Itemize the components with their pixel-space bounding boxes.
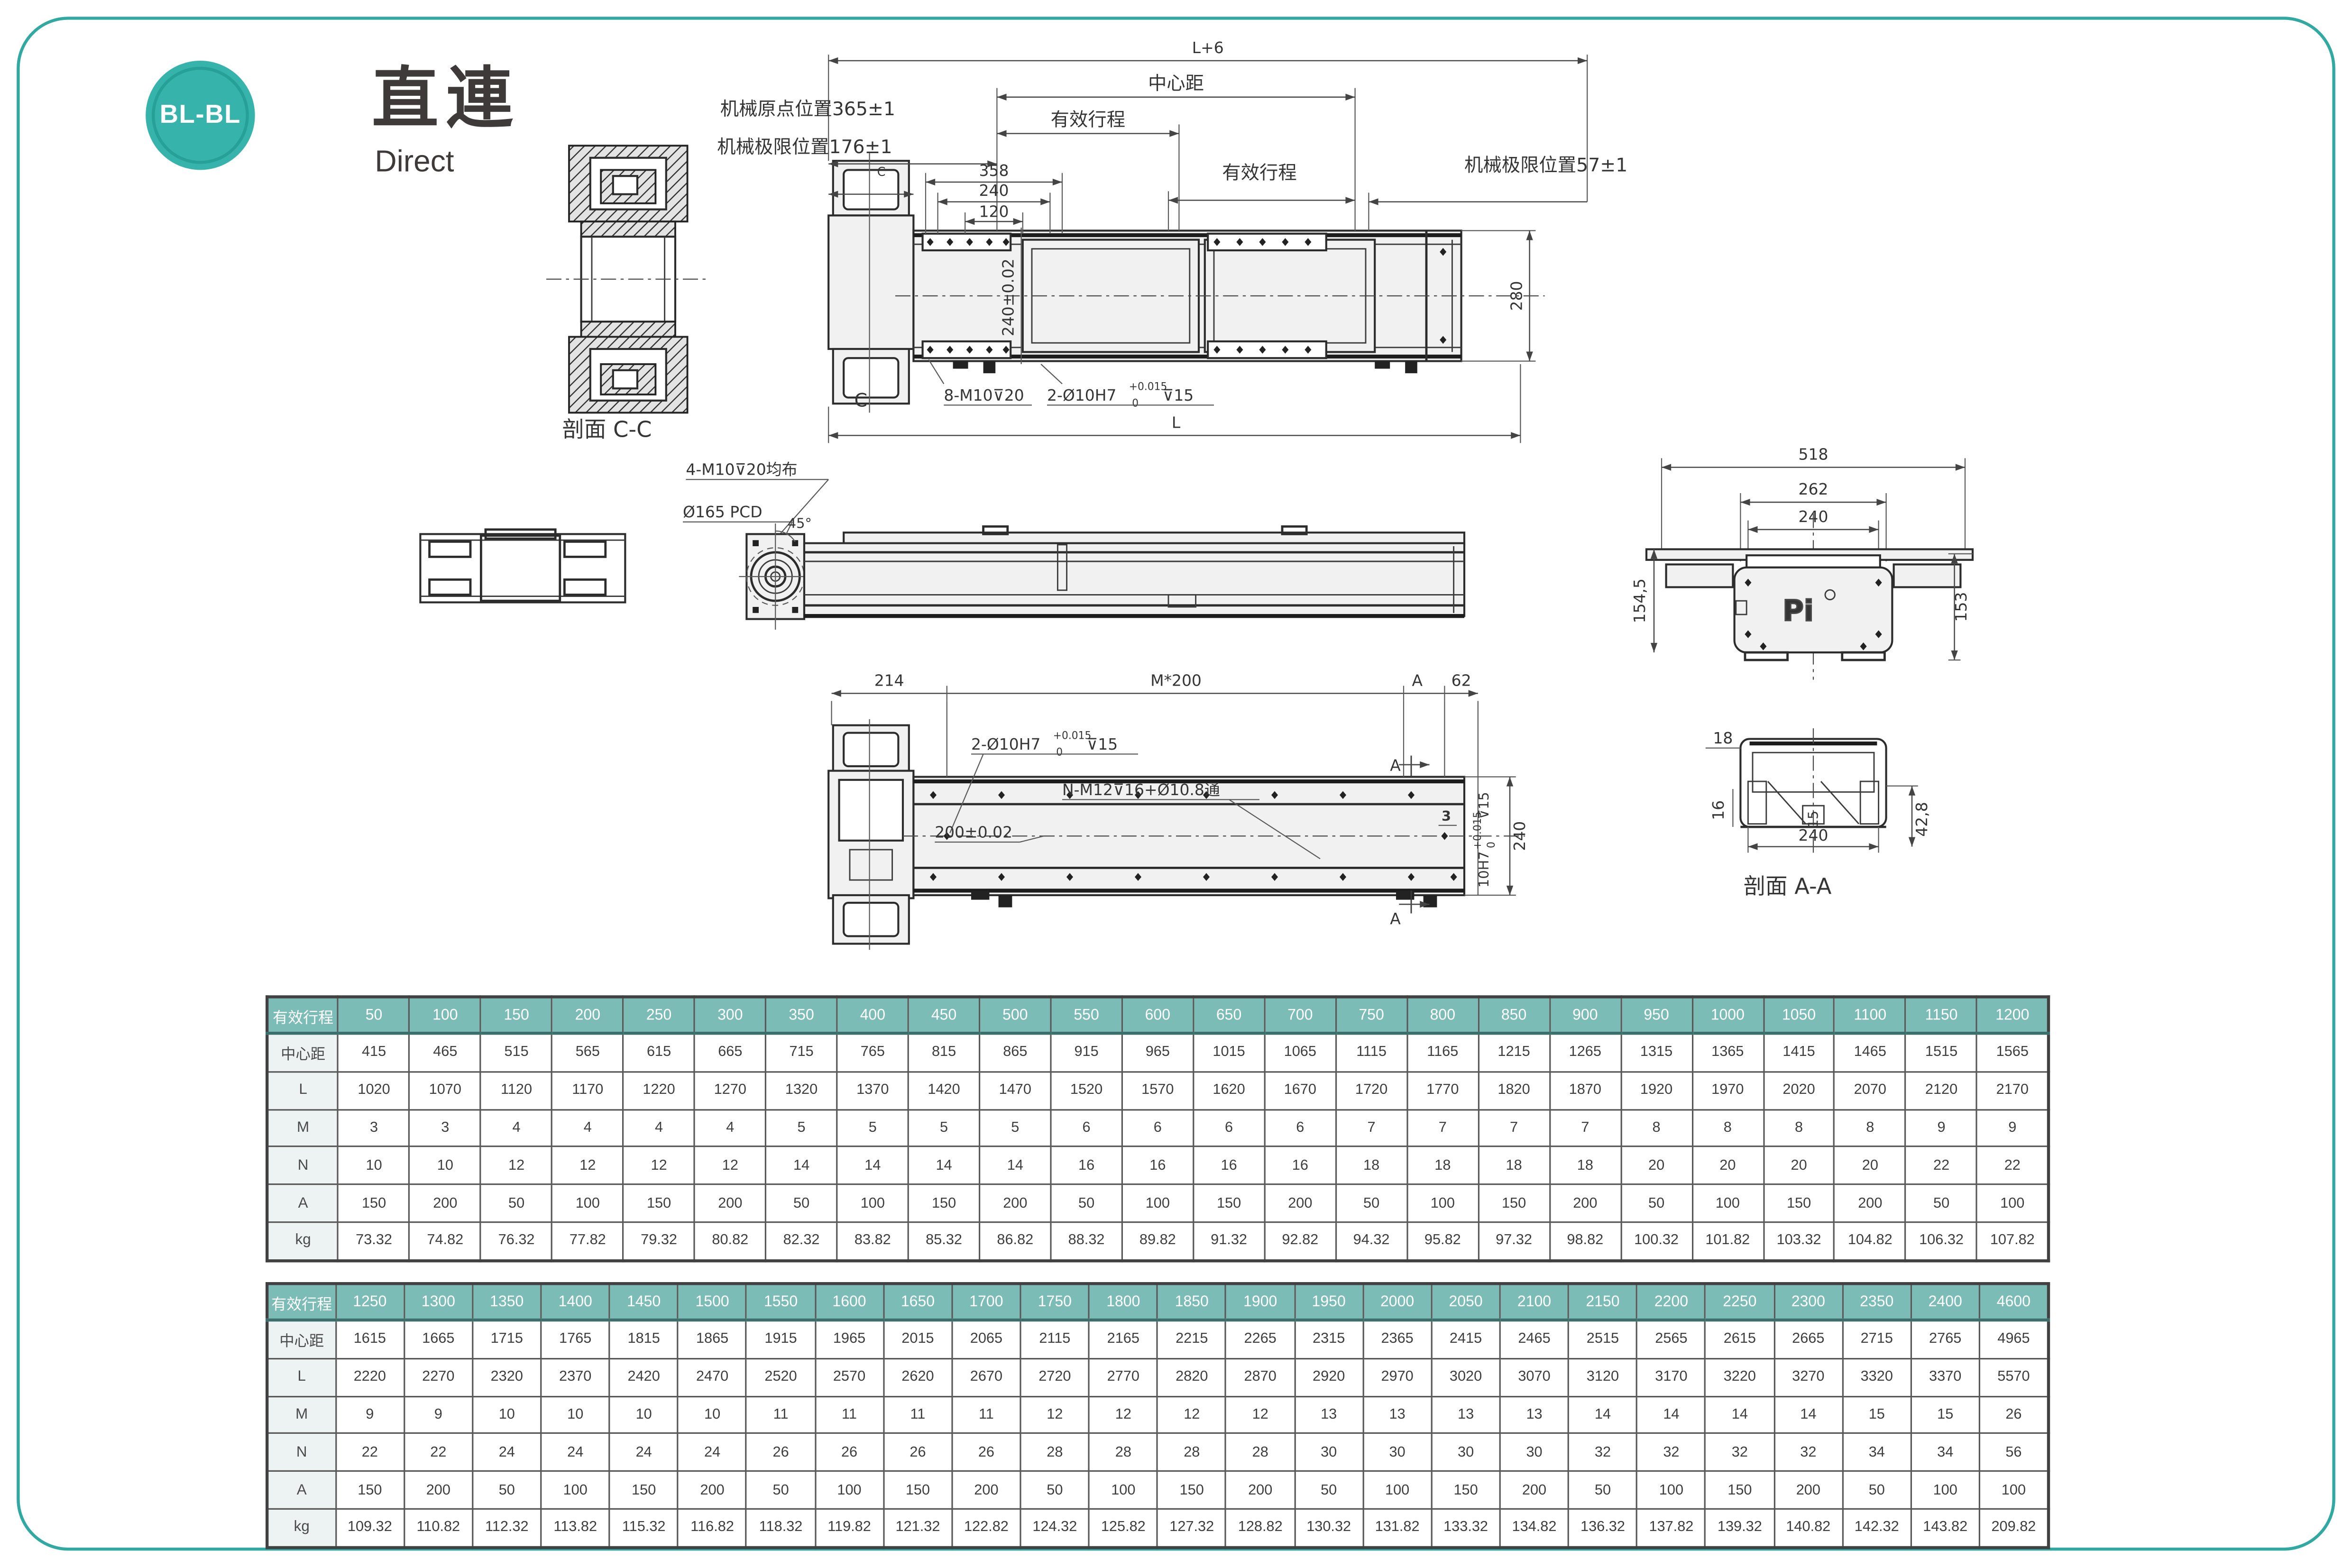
table-cell: 11 bbox=[952, 1396, 1020, 1433]
table-cell: 112.32 bbox=[473, 1509, 541, 1547]
table-cell: 1065 bbox=[1265, 1033, 1336, 1072]
table-cell: 8 bbox=[1692, 1110, 1763, 1147]
table-cell: 12 bbox=[1089, 1396, 1158, 1433]
table-cell: 200 bbox=[678, 1471, 746, 1509]
section-a-top: A bbox=[1390, 756, 1401, 775]
table-cell: 200 bbox=[952, 1471, 1020, 1509]
table-cell: 18 bbox=[1336, 1147, 1407, 1184]
table-cell: 3220 bbox=[1706, 1358, 1774, 1396]
table-cell: 18 bbox=[1478, 1147, 1549, 1184]
spec-table: 有效行程125013001350140014501500155016001650… bbox=[266, 1282, 2050, 1549]
table-cell: 24 bbox=[609, 1434, 678, 1471]
table-cell: 2265 bbox=[1226, 1320, 1295, 1358]
table-cell: 18 bbox=[1550, 1147, 1621, 1184]
table-cell: 95.82 bbox=[1407, 1222, 1478, 1261]
table-cell: 12 bbox=[623, 1147, 694, 1184]
side-hole-depth: ⊽15 bbox=[1476, 792, 1492, 819]
table-row: N101012121212141414141616161618181818202… bbox=[267, 1147, 2049, 1184]
table-cell: 2570 bbox=[815, 1358, 883, 1396]
table-cell: 10 bbox=[541, 1396, 609, 1433]
table-cell: 2665 bbox=[1774, 1320, 1842, 1358]
table-cell: 119.82 bbox=[815, 1509, 883, 1547]
table-cell: 16 bbox=[1265, 1147, 1336, 1184]
table-cell: 137.82 bbox=[1637, 1509, 1705, 1547]
table-cell: 116.82 bbox=[678, 1509, 746, 1547]
stroke-header-value: 1350 bbox=[473, 1284, 541, 1320]
table-cell: 1320 bbox=[766, 1072, 837, 1109]
table-cell: 1915 bbox=[746, 1320, 815, 1358]
table-cell: 113.82 bbox=[541, 1509, 609, 1547]
section-mark-c-bottom: C bbox=[854, 390, 867, 412]
table-cell: 965 bbox=[1122, 1033, 1193, 1072]
table-cell: 20 bbox=[1763, 1147, 1834, 1184]
section-cc-label: 剖面 C-C bbox=[562, 417, 652, 442]
tol-sup-bottom: +0.015 bbox=[1053, 730, 1092, 742]
table-cell: 50 bbox=[481, 1184, 552, 1222]
table-cell: 2215 bbox=[1158, 1320, 1226, 1358]
table-cell: 28 bbox=[1089, 1434, 1158, 1471]
dim-18: 18 bbox=[1713, 729, 1733, 747]
table-cell: 150 bbox=[1706, 1471, 1774, 1509]
table-cell: 8 bbox=[1621, 1110, 1692, 1147]
stroke-header-value: 500 bbox=[980, 997, 1051, 1033]
table-cell: 150 bbox=[336, 1471, 404, 1509]
dim-m200: M*200 bbox=[1150, 671, 1202, 689]
table-cell: 2120 bbox=[1906, 1072, 1977, 1109]
table-cell: 26 bbox=[815, 1434, 883, 1471]
table-cell: 2670 bbox=[952, 1358, 1020, 1396]
table-cell: 131.82 bbox=[1363, 1509, 1431, 1547]
table-cell: 2470 bbox=[678, 1358, 746, 1396]
a-mark-dim: A bbox=[1412, 671, 1423, 689]
table-cell: 125.82 bbox=[1089, 1509, 1158, 1547]
dim-240-d: 240 bbox=[1799, 826, 1828, 844]
table-cell: 2365 bbox=[1363, 1320, 1431, 1358]
table-cell: 415 bbox=[338, 1033, 409, 1072]
table-cell: 20 bbox=[1621, 1147, 1692, 1184]
note-8m10: 8-M10⊽20 bbox=[944, 386, 1024, 404]
table-cell: 1870 bbox=[1550, 1072, 1621, 1109]
table-cell: 22 bbox=[404, 1434, 472, 1471]
side-hole-note: 10H7 bbox=[1476, 851, 1492, 888]
table-cell: 3120 bbox=[1569, 1358, 1637, 1396]
row-label: M bbox=[267, 1396, 335, 1433]
table-cell: 1115 bbox=[1336, 1033, 1407, 1072]
table-row: 中心距1615166517151765181518651915196520152… bbox=[267, 1320, 2049, 1358]
table-cell: 100 bbox=[1407, 1184, 1478, 1222]
table-cell: 1770 bbox=[1407, 1072, 1478, 1109]
row-label: A bbox=[267, 1184, 338, 1222]
table-cell: 7 bbox=[1407, 1110, 1478, 1147]
table-cell: 74.82 bbox=[410, 1222, 481, 1261]
table-cell: 2420 bbox=[609, 1358, 678, 1396]
table-cell: 1620 bbox=[1193, 1072, 1264, 1109]
table-cell: 200 bbox=[410, 1184, 481, 1222]
table-cell: 1270 bbox=[695, 1072, 766, 1109]
dim-120: 120 bbox=[979, 202, 1009, 221]
table-cell: 1970 bbox=[1692, 1072, 1763, 1109]
stroke-header-value: 200 bbox=[552, 997, 623, 1033]
table-cell: 1015 bbox=[1193, 1033, 1264, 1072]
table-cell: 2320 bbox=[473, 1358, 541, 1396]
stroke-header-value: 2350 bbox=[1843, 1284, 1911, 1320]
stroke-header-value: 600 bbox=[1122, 997, 1193, 1033]
table-cell: 865 bbox=[980, 1033, 1051, 1072]
carriage-top-view bbox=[420, 530, 625, 603]
table-cell: 22 bbox=[1906, 1147, 1977, 1184]
table-cell: 1370 bbox=[837, 1072, 908, 1109]
table-row: L222022702320237024202470252025702620267… bbox=[267, 1358, 2049, 1396]
table-cell: 100 bbox=[552, 1184, 623, 1222]
table-cell: 10 bbox=[609, 1396, 678, 1433]
dim-l6: L+6 bbox=[1192, 38, 1224, 57]
stroke-header-value: 1050 bbox=[1763, 997, 1834, 1033]
table-cell: 24 bbox=[473, 1434, 541, 1471]
table-cell: 150 bbox=[1158, 1471, 1226, 1509]
table-cell: 2620 bbox=[883, 1358, 952, 1396]
table-cell: 2015 bbox=[883, 1320, 952, 1358]
table-cell: 100 bbox=[1911, 1471, 1979, 1509]
table-cell: 73.32 bbox=[338, 1222, 409, 1261]
table-cell: 12 bbox=[695, 1147, 766, 1184]
table-cell: 1615 bbox=[336, 1320, 404, 1358]
table-cell: 3170 bbox=[1637, 1358, 1705, 1396]
table-cell: 115.32 bbox=[609, 1509, 678, 1547]
table-cell: 515 bbox=[481, 1033, 552, 1072]
table-cell: 5 bbox=[908, 1110, 979, 1147]
table-cell: 14 bbox=[766, 1147, 837, 1184]
table-cell: 50 bbox=[473, 1471, 541, 1509]
table-cell: 4 bbox=[623, 1110, 694, 1147]
table-cell: 14 bbox=[1637, 1396, 1705, 1433]
dim-214: 214 bbox=[874, 671, 904, 689]
table-cell: 150 bbox=[1478, 1184, 1549, 1222]
stroke-header-value: 2100 bbox=[1500, 1284, 1568, 1320]
table-cell: 100 bbox=[837, 1184, 908, 1222]
dim-262: 262 bbox=[1799, 480, 1828, 498]
table-cell: 100 bbox=[815, 1471, 883, 1509]
table-cell: 5 bbox=[837, 1110, 908, 1147]
table-cell: 3320 bbox=[1843, 1358, 1911, 1396]
table-cell: 150 bbox=[1763, 1184, 1834, 1222]
table-cell: 150 bbox=[338, 1184, 409, 1222]
table-cell: 7 bbox=[1550, 1110, 1621, 1147]
table-cell: 100 bbox=[1637, 1471, 1705, 1509]
top-view: C C bbox=[717, 38, 1627, 443]
table-cell: 3270 bbox=[1774, 1358, 1842, 1396]
table-cell: 79.32 bbox=[623, 1222, 694, 1261]
table-cell: 2315 bbox=[1295, 1320, 1363, 1358]
table-cell: 1215 bbox=[1478, 1033, 1549, 1072]
dim-200-tol: 200±0.02 bbox=[935, 823, 1012, 841]
table-cell: 3370 bbox=[1911, 1358, 1979, 1396]
table-cell: 200 bbox=[1500, 1471, 1568, 1509]
datasheet-page: BL-BL 直連 Direct bbox=[0, 0, 2352, 1568]
table-cell: 26 bbox=[1979, 1396, 2049, 1433]
table-cell: 1515 bbox=[1906, 1033, 1977, 1072]
table-cell: 1570 bbox=[1122, 1072, 1193, 1109]
table-cell: 200 bbox=[980, 1184, 1051, 1222]
stroke-header-label: 有效行程 bbox=[267, 1284, 335, 1320]
table-cell: 50 bbox=[1336, 1184, 1407, 1222]
table-cell: 2920 bbox=[1295, 1358, 1363, 1396]
table-cell: 28 bbox=[1158, 1434, 1226, 1471]
table-cell: 10 bbox=[473, 1396, 541, 1433]
table-cell: 34 bbox=[1911, 1434, 1979, 1471]
table-cell: 2720 bbox=[1020, 1358, 1089, 1396]
end-view: 518 262 240 Pi 154,5 153 bbox=[1630, 445, 1973, 680]
table-cell: 139.32 bbox=[1706, 1509, 1774, 1547]
table-cell: 50 bbox=[1051, 1184, 1122, 1222]
side-hole-sub: 0 bbox=[1486, 842, 1498, 848]
table-cell: 100 bbox=[541, 1471, 609, 1509]
table-cell: 32 bbox=[1569, 1434, 1637, 1471]
table-row: M334444555566667777888899 bbox=[267, 1110, 2049, 1147]
stroke-header-value: 250 bbox=[623, 997, 694, 1033]
table-cell: 118.32 bbox=[746, 1509, 815, 1547]
table-cell: 2465 bbox=[1500, 1320, 1568, 1358]
table-cell: 200 bbox=[1265, 1184, 1336, 1222]
table-cell: 2765 bbox=[1911, 1320, 1979, 1358]
tol-sub-bottom: 0 bbox=[1056, 747, 1063, 759]
table-cell: 28 bbox=[1020, 1434, 1089, 1471]
table-cell: 50 bbox=[1906, 1184, 1977, 1222]
dim-153: 153 bbox=[1952, 592, 1970, 622]
table-cell: 30 bbox=[1500, 1434, 1568, 1471]
stroke-header-value: 2000 bbox=[1363, 1284, 1431, 1320]
table-cell: 16 bbox=[1193, 1147, 1264, 1184]
table-cell: 1565 bbox=[1977, 1033, 2049, 1072]
table-cell: 24 bbox=[541, 1434, 609, 1471]
table-cell: 104.82 bbox=[1835, 1222, 1906, 1261]
table-cell: 7 bbox=[1478, 1110, 1549, 1147]
table-cell: 1415 bbox=[1763, 1033, 1834, 1072]
table-cell: 3020 bbox=[1432, 1358, 1500, 1396]
table-cell: 32 bbox=[1637, 1434, 1705, 1471]
table-cell: 20 bbox=[1835, 1147, 1906, 1184]
limit-right-label: 机械极限位置57±1 bbox=[1464, 155, 1627, 176]
table-cell: 2270 bbox=[404, 1358, 472, 1396]
table-cell: 1665 bbox=[404, 1320, 472, 1358]
tol-sub: 0 bbox=[1132, 398, 1139, 410]
table-cell: 13 bbox=[1500, 1396, 1568, 1433]
table-cell: 92.82 bbox=[1265, 1222, 1336, 1261]
table-cell: 2520 bbox=[746, 1358, 815, 1396]
table-cell: 143.82 bbox=[1911, 1509, 1979, 1547]
stroke-header-value: 1450 bbox=[609, 1284, 678, 1320]
table-cell: 11 bbox=[815, 1396, 883, 1433]
stroke-header-value: 750 bbox=[1336, 997, 1407, 1033]
table-cell: 10 bbox=[678, 1396, 746, 1433]
stroke-header-value: 1900 bbox=[1226, 1284, 1295, 1320]
table-cell: 91.32 bbox=[1193, 1222, 1264, 1261]
stroke-header-value: 1500 bbox=[678, 1284, 746, 1320]
spec-table-2: 有效行程125013001350140014501500155016001650… bbox=[266, 1282, 2050, 1549]
table-row: 中心距4154655155656156657157658158659159651… bbox=[267, 1033, 2049, 1072]
table-cell: 1765 bbox=[541, 1320, 609, 1358]
table-cell: 32 bbox=[1774, 1434, 1842, 1471]
table-cell: 14 bbox=[1774, 1396, 1842, 1433]
table-cell: 2115 bbox=[1020, 1320, 1089, 1358]
table-cell: 34 bbox=[1843, 1434, 1911, 1471]
limit-left-label: 机械极限位置176±1 bbox=[717, 136, 892, 158]
table-cell: 2370 bbox=[541, 1358, 609, 1396]
table-cell: 1265 bbox=[1550, 1033, 1621, 1072]
table-cell: 2615 bbox=[1706, 1320, 1774, 1358]
table-cell: 136.32 bbox=[1569, 1509, 1637, 1547]
table-cell: 1470 bbox=[980, 1072, 1051, 1109]
table-cell: 200 bbox=[1550, 1184, 1621, 1222]
table-cell: 2165 bbox=[1089, 1320, 1158, 1358]
table-cell: 50 bbox=[766, 1184, 837, 1222]
table-cell: 88.32 bbox=[1051, 1222, 1122, 1261]
table-row: A150200501001502005010015020050100150200… bbox=[267, 1184, 2049, 1222]
note-pcd: Ø165 PCD bbox=[683, 503, 763, 521]
stroke-header-value: 2050 bbox=[1432, 1284, 1500, 1320]
stroke-header-value: 4600 bbox=[1979, 1284, 2049, 1320]
depth-15: ⊽15 bbox=[1162, 386, 1194, 404]
stroke-header-value: 350 bbox=[766, 997, 837, 1033]
bottom-view: 214 M*200 A 62 2-Ø10H7 +0.015 0 ⊽15 N-M1… bbox=[828, 671, 1529, 950]
table-row: A150200501001502005010015020050100150200… bbox=[267, 1471, 2049, 1509]
table-cell: 83.82 bbox=[837, 1222, 908, 1261]
table-row: kg73.3274.8276.3277.8279.3280.8282.3283.… bbox=[267, 1222, 2049, 1261]
table-cell: 2065 bbox=[952, 1320, 1020, 1358]
table-cell: 2770 bbox=[1089, 1358, 1158, 1396]
row-label: L bbox=[267, 1072, 338, 1109]
table-cell: 15 bbox=[1911, 1396, 1979, 1433]
table-cell: 18 bbox=[1407, 1147, 1478, 1184]
row-label: A bbox=[267, 1471, 335, 1509]
table-cell: 22 bbox=[1977, 1147, 2049, 1184]
table-cell: 4 bbox=[695, 1110, 766, 1147]
table-cell: 2415 bbox=[1432, 1320, 1500, 1358]
table-cell: 50 bbox=[1843, 1471, 1911, 1509]
table-cell: 615 bbox=[623, 1033, 694, 1072]
stroke-header-value: 100 bbox=[410, 997, 481, 1033]
dim-center-distance: 中心距 bbox=[1148, 73, 1204, 94]
table-cell: 2070 bbox=[1835, 1072, 1906, 1109]
table-cell: 20 bbox=[1692, 1147, 1763, 1184]
stroke-header-value: 50 bbox=[338, 997, 409, 1033]
technical-drawings: 剖面 C-C C C bbox=[0, 0, 2352, 986]
table-cell: 12 bbox=[1226, 1396, 1295, 1433]
table-cell: 1720 bbox=[1336, 1072, 1407, 1109]
table-cell: 200 bbox=[404, 1471, 472, 1509]
stroke-header-value: 2400 bbox=[1911, 1284, 1979, 1320]
table-cell: 1070 bbox=[410, 1072, 481, 1109]
table-cell: 1920 bbox=[1621, 1072, 1692, 1109]
dim-stroke-left: 有效行程 bbox=[1051, 109, 1125, 131]
note-2holes: 2-Ø10H7 bbox=[1047, 386, 1116, 404]
stroke-header-value: 700 bbox=[1265, 997, 1336, 1033]
table-cell: 100 bbox=[1977, 1184, 2049, 1222]
table-cell: 50 bbox=[1020, 1471, 1089, 1509]
row-label: N bbox=[267, 1434, 335, 1471]
table-cell: 4 bbox=[552, 1110, 623, 1147]
dim-280: 280 bbox=[1507, 281, 1526, 311]
table-cell: 15 bbox=[1843, 1396, 1911, 1433]
table-cell: 3070 bbox=[1500, 1358, 1568, 1396]
row-label: M bbox=[267, 1110, 338, 1147]
table-cell: 109.32 bbox=[336, 1509, 404, 1547]
table-cell: 97.32 bbox=[1478, 1222, 1549, 1261]
table-cell: 915 bbox=[1051, 1033, 1122, 1072]
table-cell: 107.82 bbox=[1977, 1222, 2049, 1261]
table-cell: 150 bbox=[883, 1471, 952, 1509]
table-cell: 14 bbox=[1569, 1396, 1637, 1433]
stroke-header-value: 1850 bbox=[1158, 1284, 1226, 1320]
table-cell: 2870 bbox=[1226, 1358, 1295, 1396]
dim-240-a: 240 bbox=[979, 181, 1009, 200]
table-cell: 85.32 bbox=[908, 1222, 979, 1261]
table-cell: 82.32 bbox=[766, 1222, 837, 1261]
table-cell: 100.32 bbox=[1621, 1222, 1692, 1261]
table-cell: 200 bbox=[695, 1184, 766, 1222]
section-cc-view: 剖面 C-C bbox=[546, 146, 710, 442]
table-cell: 1220 bbox=[623, 1072, 694, 1109]
table-cell: 26 bbox=[883, 1434, 952, 1471]
table-row: M991010101011111111121212121313131314141… bbox=[267, 1396, 2049, 1433]
table-cell: 7 bbox=[1336, 1110, 1407, 1147]
table-cell: 11 bbox=[883, 1396, 952, 1433]
stroke-header-value: 2150 bbox=[1569, 1284, 1637, 1320]
table-cell: 9 bbox=[336, 1396, 404, 1433]
table-cell: 127.32 bbox=[1158, 1509, 1226, 1547]
dim-stroke-right: 有效行程 bbox=[1222, 162, 1296, 184]
stroke-header-value: 400 bbox=[837, 997, 908, 1033]
table-cell: 150 bbox=[1432, 1471, 1500, 1509]
table-cell: 1670 bbox=[1265, 1072, 1336, 1109]
dim-240-c: 240 bbox=[1510, 821, 1529, 851]
stroke-header-label: 有效行程 bbox=[267, 997, 338, 1033]
origin-position-label: 机械原点位置365±1 bbox=[720, 98, 895, 120]
dim-L: L bbox=[1172, 413, 1181, 431]
stroke-header-value: 650 bbox=[1193, 997, 1264, 1033]
stroke-header-value: 300 bbox=[695, 997, 766, 1033]
row-label: N bbox=[267, 1147, 338, 1184]
dim-240-tol: 240±0.02 bbox=[999, 258, 1018, 336]
table-cell: 1365 bbox=[1692, 1033, 1763, 1072]
table-cell: 200 bbox=[1835, 1184, 1906, 1222]
table-cell: 16 bbox=[1122, 1147, 1193, 1184]
table-cell: 6 bbox=[1265, 1110, 1336, 1147]
table-cell: 2715 bbox=[1843, 1320, 1911, 1358]
stroke-header-value: 1100 bbox=[1835, 997, 1906, 1033]
table-cell: 715 bbox=[766, 1033, 837, 1072]
table-cell: 106.32 bbox=[1906, 1222, 1977, 1261]
table-cell: 14 bbox=[980, 1147, 1051, 1184]
table-cell: 86.82 bbox=[980, 1222, 1051, 1261]
section-mark-c-top: C bbox=[877, 165, 886, 179]
table-cell: 100 bbox=[1363, 1471, 1431, 1509]
stroke-header-value: 900 bbox=[1550, 997, 1621, 1033]
table-cell: 140.82 bbox=[1774, 1509, 1842, 1547]
table-cell: 26 bbox=[746, 1434, 815, 1471]
table-cell: 100 bbox=[1692, 1184, 1763, 1222]
table-cell: 124.32 bbox=[1020, 1509, 1089, 1547]
stroke-header-value: 800 bbox=[1407, 997, 1478, 1033]
table-cell: 665 bbox=[695, 1033, 766, 1072]
table-cell: 1165 bbox=[1407, 1033, 1478, 1072]
table-row: L102010701120117012201270132013701420147… bbox=[267, 1072, 2049, 1109]
table-cell: 128.82 bbox=[1226, 1509, 1295, 1547]
row-label: kg bbox=[267, 1222, 338, 1261]
stroke-header-value: 1650 bbox=[883, 1284, 952, 1320]
stroke-header-value: 950 bbox=[1621, 997, 1692, 1033]
table-row: kg109.32110.82112.32113.82115.32116.8211… bbox=[267, 1509, 2049, 1547]
table-cell: 100 bbox=[1122, 1184, 1193, 1222]
